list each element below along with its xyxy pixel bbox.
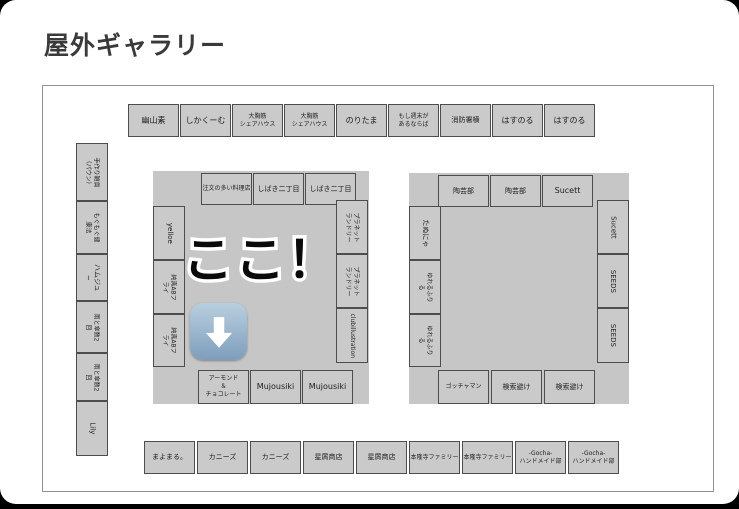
booth-label: ゆれるふりる <box>418 326 433 356</box>
booth-cell: カニーズ <box>250 441 301 474</box>
booth-cell: 陶芸部 <box>438 175 489 207</box>
booth-cell: 純真ABフライ <box>153 260 185 314</box>
booth-cell: Mujousiki <box>302 370 353 404</box>
booth-cell: もぐもぐ健康法 <box>76 201 108 254</box>
booth-cell: たぬにゃ <box>409 206 441 260</box>
booth-cell: -Gocha- ハンドメイド部 <box>515 441 566 474</box>
booth-cell: ゴッチャマン <box>438 370 489 404</box>
down-arrow-glyph <box>198 311 240 353</box>
booth-label: yelloe <box>165 223 174 244</box>
booth-cell: プラネット ランドリー <box>336 200 368 254</box>
booth-label: 雨と傘数2回 <box>85 312 100 342</box>
booth-cell: 星屑商店 <box>303 441 354 474</box>
booth-cell: のりたま <box>336 104 387 137</box>
booth-cell: Mujousiki <box>250 370 301 404</box>
booth-cell: Lily <box>76 401 108 456</box>
booth-cell: はすのる <box>492 104 543 137</box>
booth-label: プラネット ランドリー <box>345 212 360 242</box>
booth-cell: しばき二丁目 <box>253 173 304 205</box>
booth-label: もぐもぐ健康法 <box>85 213 100 243</box>
booth-cell: 雨と傘数2回 <box>76 301 108 353</box>
image-card: 屋外ギャラリー 幽山素 しかくーむ 大胸筋 シェアハウス 大胸筋 シェアハウス … <box>0 0 739 504</box>
booth-label: 純真ABフライ <box>162 272 177 302</box>
booth-cell: 注文の多い料理店 <box>201 173 252 205</box>
booth-cell: 雨と傘数2回 <box>76 353 108 401</box>
booth-cell: カニーズ <box>197 441 248 474</box>
booth-cell: はすのる <box>544 104 595 137</box>
booth-cell: 検索避け <box>544 370 595 404</box>
booth-cell: ゆれるふりる <box>409 260 441 314</box>
booth-label: SEEDS <box>609 324 618 347</box>
booth-label: clubillustration <box>348 313 356 358</box>
booth-cell: まよまる。 <box>144 441 195 474</box>
booth-cell: しかくーむ <box>180 104 231 137</box>
booth-label: ハムジュ~ <box>83 263 101 293</box>
booth-label: Sucett <box>609 216 618 239</box>
booth-label: SEEDS <box>609 269 618 292</box>
booth-cell: yelloe <box>153 206 185 260</box>
booth-cell: 純真ABフライ <box>153 314 185 367</box>
booth-label: たぬにゃ <box>421 219 430 247</box>
booth-cell: clubillustration <box>336 308 368 363</box>
booth-cell: 大胸筋 シェアハウス <box>284 104 335 137</box>
booth-cell: 陶芸部 <box>490 175 541 207</box>
booth-cell: Sucett <box>542 175 593 207</box>
booth-cell: 大胸筋 シェアハウス <box>232 104 283 137</box>
booth-cell: 消防署横 <box>440 104 491 137</box>
booth-label: 雨と傘数2回 <box>85 362 100 392</box>
here-label: ここ！ <box>183 220 339 292</box>
booth-cell: 手作り雑貨 （パウン） <box>76 143 108 201</box>
booth-label: Lily <box>88 423 97 435</box>
booth-label: プラネット ランドリー <box>345 266 360 296</box>
booth-label: 手作り雑貨 （パウン） <box>85 157 100 187</box>
booth-cell: 星屑商店 <box>356 441 407 474</box>
booth-cell: ハムジュ~ <box>76 254 108 301</box>
booth-cell: SEEDS <box>597 254 629 308</box>
booth-cell: ゆれるふりる <box>409 314 441 367</box>
page-title: 屋外ギャラリー <box>44 26 226 62</box>
booth-cell: SEEDS <box>597 308 629 363</box>
booth-label: ゆれるふりる <box>418 272 433 302</box>
floor-plan: 幽山素 しかくーむ 大胸筋 シェアハウス 大胸筋 シェアハウス のりたま もし週… <box>42 85 714 492</box>
booth-label: 純真ABフライ <box>162 326 177 356</box>
down-arrow-emoji-icon <box>190 303 247 360</box>
booth-cell: -Gocha- ハンドメイド部 <box>568 441 619 474</box>
booth-cell: プラネット ランドリー <box>336 254 368 308</box>
booth-cell: Sucett <box>597 200 629 254</box>
booth-cell: 本隆寺ファミリー <box>462 441 513 474</box>
booth-cell: もし週末が あるならば <box>388 104 439 137</box>
booth-cell: 本隆寺ファミリー <box>409 441 460 474</box>
booth-cell: 幽山素 <box>128 104 179 137</box>
booth-cell: 検索避け <box>491 370 542 404</box>
booth-cell: アーモンド ＆ チョコレート <box>198 370 249 404</box>
